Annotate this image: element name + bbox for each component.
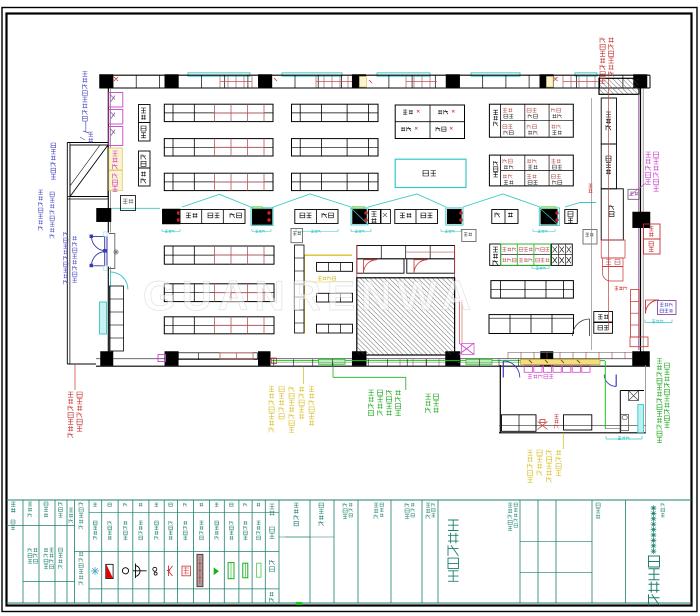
svg-text:GUANRENWA: GUANRENWA — [143, 272, 477, 319]
